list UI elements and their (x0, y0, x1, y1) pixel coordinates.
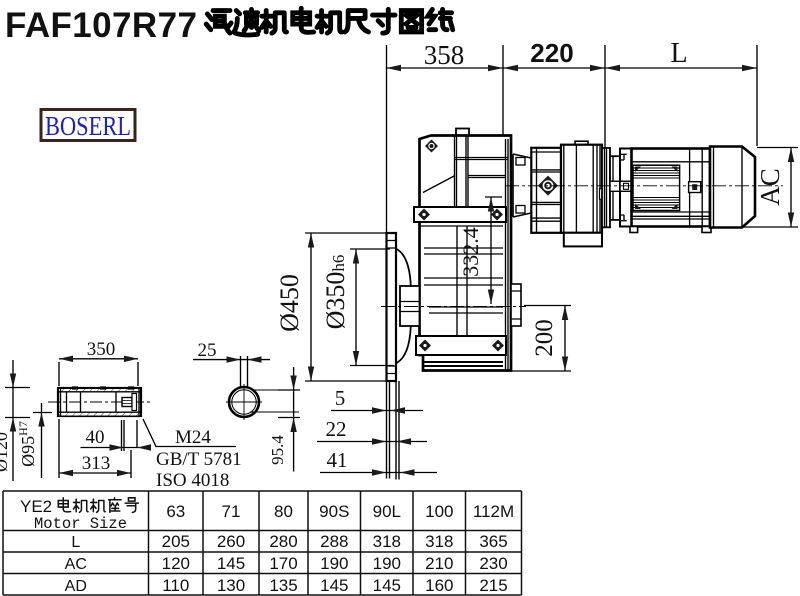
svg-text:FAF107R77: FAF107R77 (5, 6, 197, 45)
svg-text:130: 130 (217, 576, 245, 595)
svg-text:90S: 90S (319, 502, 349, 521)
svg-text:332.4: 332.4 (458, 227, 483, 277)
svg-text:90L: 90L (373, 502, 401, 521)
svg-text:160: 160 (425, 576, 453, 595)
svg-text:95.4: 95.4 (268, 435, 287, 465)
svg-text:L: L (670, 38, 687, 69)
svg-text:313: 313 (82, 453, 111, 474)
svg-text:288: 288 (320, 532, 348, 551)
svg-text:318: 318 (425, 532, 453, 551)
svg-text:M24: M24 (175, 427, 211, 448)
svg-text:AC: AC (65, 556, 87, 573)
svg-text:120: 120 (162, 554, 190, 573)
svg-text:350: 350 (87, 339, 116, 360)
svg-text:190: 190 (320, 554, 348, 573)
svg-text:Ø450: Ø450 (275, 274, 304, 332)
svg-text:200: 200 (531, 319, 558, 357)
svg-text:260: 260 (217, 532, 245, 551)
svg-text:AD: AD (65, 578, 87, 595)
svg-text:AC: AC (755, 168, 785, 206)
svg-text:L: L (71, 534, 80, 551)
svg-text:318: 318 (373, 532, 401, 551)
svg-text:170: 170 (269, 554, 297, 573)
svg-text:280: 280 (269, 532, 297, 551)
svg-text:230: 230 (479, 554, 507, 573)
svg-text:110: 110 (162, 576, 189, 595)
svg-text:358: 358 (424, 40, 465, 70)
svg-text:100: 100 (425, 502, 453, 521)
svg-text:112M: 112M (473, 502, 514, 521)
svg-text:22: 22 (326, 417, 347, 441)
svg-text:40: 40 (86, 427, 105, 448)
svg-text:210: 210 (425, 554, 453, 573)
svg-text:220: 220 (530, 38, 573, 68)
svg-text:GB/T 5781: GB/T 5781 (156, 449, 242, 470)
svg-text:145: 145 (217, 554, 245, 573)
svg-text:145: 145 (320, 576, 348, 595)
svg-text:205: 205 (162, 532, 190, 551)
svg-text:41: 41 (327, 448, 348, 472)
svg-text:5: 5 (335, 386, 346, 410)
svg-text:63: 63 (166, 502, 185, 521)
svg-text:YE2: YE2 (20, 497, 52, 516)
svg-text:25: 25 (198, 340, 217, 361)
svg-text:145: 145 (373, 576, 401, 595)
svg-text:215: 215 (479, 576, 507, 595)
svg-text:ISO 4018: ISO 4018 (156, 470, 229, 491)
svg-text:BOSERL: BOSERL (45, 111, 131, 141)
svg-text:80: 80 (274, 502, 293, 521)
svg-text:365: 365 (479, 532, 507, 551)
svg-text:Ø120: Ø120 (0, 432, 11, 472)
svg-text:135: 135 (269, 576, 297, 595)
svg-text:190: 190 (373, 554, 401, 573)
svg-text:Motor Size: Motor Size (34, 515, 127, 533)
svg-text:71: 71 (222, 502, 241, 521)
